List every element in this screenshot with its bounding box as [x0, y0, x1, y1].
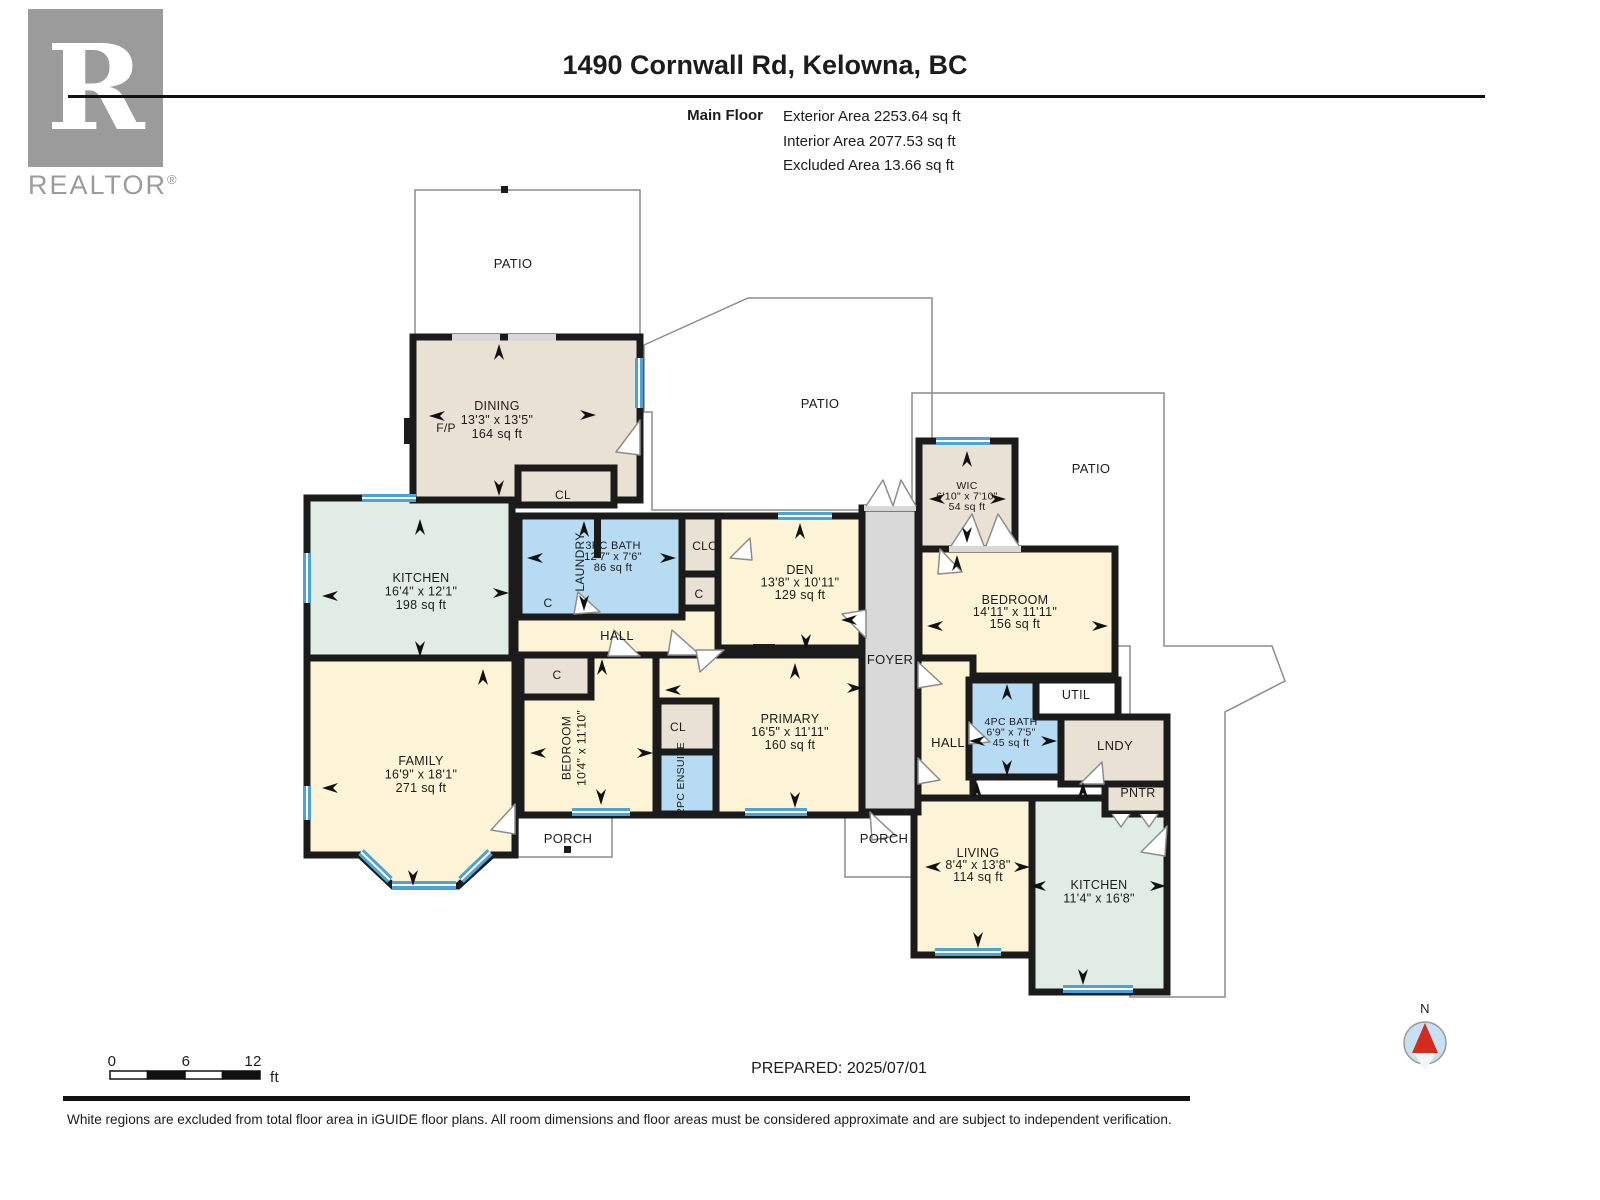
label-foyer: FOYER: [867, 652, 913, 667]
label-c-hall: C: [544, 596, 553, 610]
label-lndy: LNDY: [1097, 738, 1133, 753]
footer-divider: [63, 1096, 1190, 1101]
label-primary-1: 16'5" x 11'11": [751, 725, 829, 739]
label-bedroom-mid-0: BEDROOM: [560, 716, 574, 780]
room-ensuite: [658, 752, 716, 814]
wall-stub-primary: [753, 644, 775, 653]
label-dining-2: 164 sq ft: [472, 427, 523, 441]
label-primary-2: 160 sq ft: [765, 738, 816, 752]
label-kitchen-left-1: 16'4" x 12'1": [385, 585, 457, 599]
label-family-0: FAMILY: [398, 754, 444, 768]
label-living-2: 114 sq ft: [953, 870, 1003, 884]
label-kitchen-left-0: KITCHEN: [393, 571, 450, 585]
label-wic-2: 54 sq ft: [949, 501, 986, 513]
scale-bar: [110, 1071, 260, 1079]
label-kitchen-right-0: KITCHEN: [1071, 878, 1128, 892]
label-dining-0: DINING: [474, 399, 520, 413]
label-kitchen-right-1: 11'4" x 16'8": [1063, 892, 1135, 906]
label-family-1: 16'9" x 18'1": [385, 768, 457, 782]
page-title: 1490 Cornwall Rd, Kelowna, BC: [365, 50, 1165, 81]
label-primary-0: PRIMARY: [761, 712, 820, 726]
realtor-wordmark: REALTOR®: [28, 170, 179, 201]
label-porch-left: PORCH: [544, 831, 592, 846]
label-c-bedroom: C: [553, 668, 562, 682]
label-fp: F/P: [436, 421, 456, 435]
label-bath4-2: 45 sq ft: [993, 737, 1030, 749]
label-bath3-2: 86 sq ft: [594, 562, 632, 574]
label-patio-right: PATIO: [1072, 461, 1111, 476]
label-porch-right: PORCH: [860, 831, 908, 846]
realtor-logo: R: [28, 9, 163, 167]
label-hall-right: HALL: [931, 735, 965, 750]
label-util: UTIL: [1062, 688, 1090, 702]
prepared-date: PREPARED: 2025/07/01: [719, 1060, 959, 1078]
patio-mid-region: [644, 298, 932, 510]
label-hall-main: HALL: [600, 628, 634, 643]
porch-post: [564, 846, 571, 853]
registered-mark: ®: [167, 172, 179, 187]
label-scale-0: 0: [108, 1053, 117, 1070]
label-kitchen-left-2: 198 sq ft: [396, 598, 447, 612]
floor-plan-canvas: PATIODINING13'3" x 13'5"164 sq ftF/PCLPA…: [0, 0, 1600, 1200]
label-bedroom-right-2: 156 sq ft: [990, 617, 1041, 631]
label-patio-mid: PATIO: [801, 396, 840, 411]
label-scale-6: 6: [182, 1053, 191, 1070]
header-divider: [68, 95, 1485, 98]
fireplace-box: [404, 418, 414, 444]
label-cl-primary: CL: [670, 720, 686, 734]
label-ensuite: 2PC ENSUITE: [675, 742, 687, 814]
label-pntr: PNTR: [1120, 786, 1155, 800]
label-den-2: 129 sq ft: [775, 588, 826, 602]
label-family-2: 271 sq ft: [396, 781, 447, 795]
compass: [1404, 1022, 1446, 1071]
room-cl-primary: [658, 701, 716, 754]
label-cl-dining: CL: [555, 488, 571, 502]
label-compass-n: N: [1420, 1001, 1430, 1016]
label-dining-1: 13'3" x 13'5": [461, 413, 533, 427]
label-patio-top: PATIO: [494, 256, 533, 271]
label-bedroom-mid-1: 10'4" x 11'10": [575, 710, 589, 786]
patio-post: [501, 186, 508, 193]
label-clo: CLO: [692, 539, 718, 553]
label-c-clo: C: [695, 587, 704, 601]
realtor-logo-letter: R: [46, 29, 144, 147]
label-scale-unit: ft: [270, 1069, 279, 1086]
floor-plan-page: R REALTOR® 1490 Cornwall Rd, Kelowna, BC…: [0, 0, 1600, 1200]
footer-disclaimer: White regions are excluded from total fl…: [67, 1112, 1172, 1127]
label-scale-12: 12: [244, 1053, 261, 1070]
